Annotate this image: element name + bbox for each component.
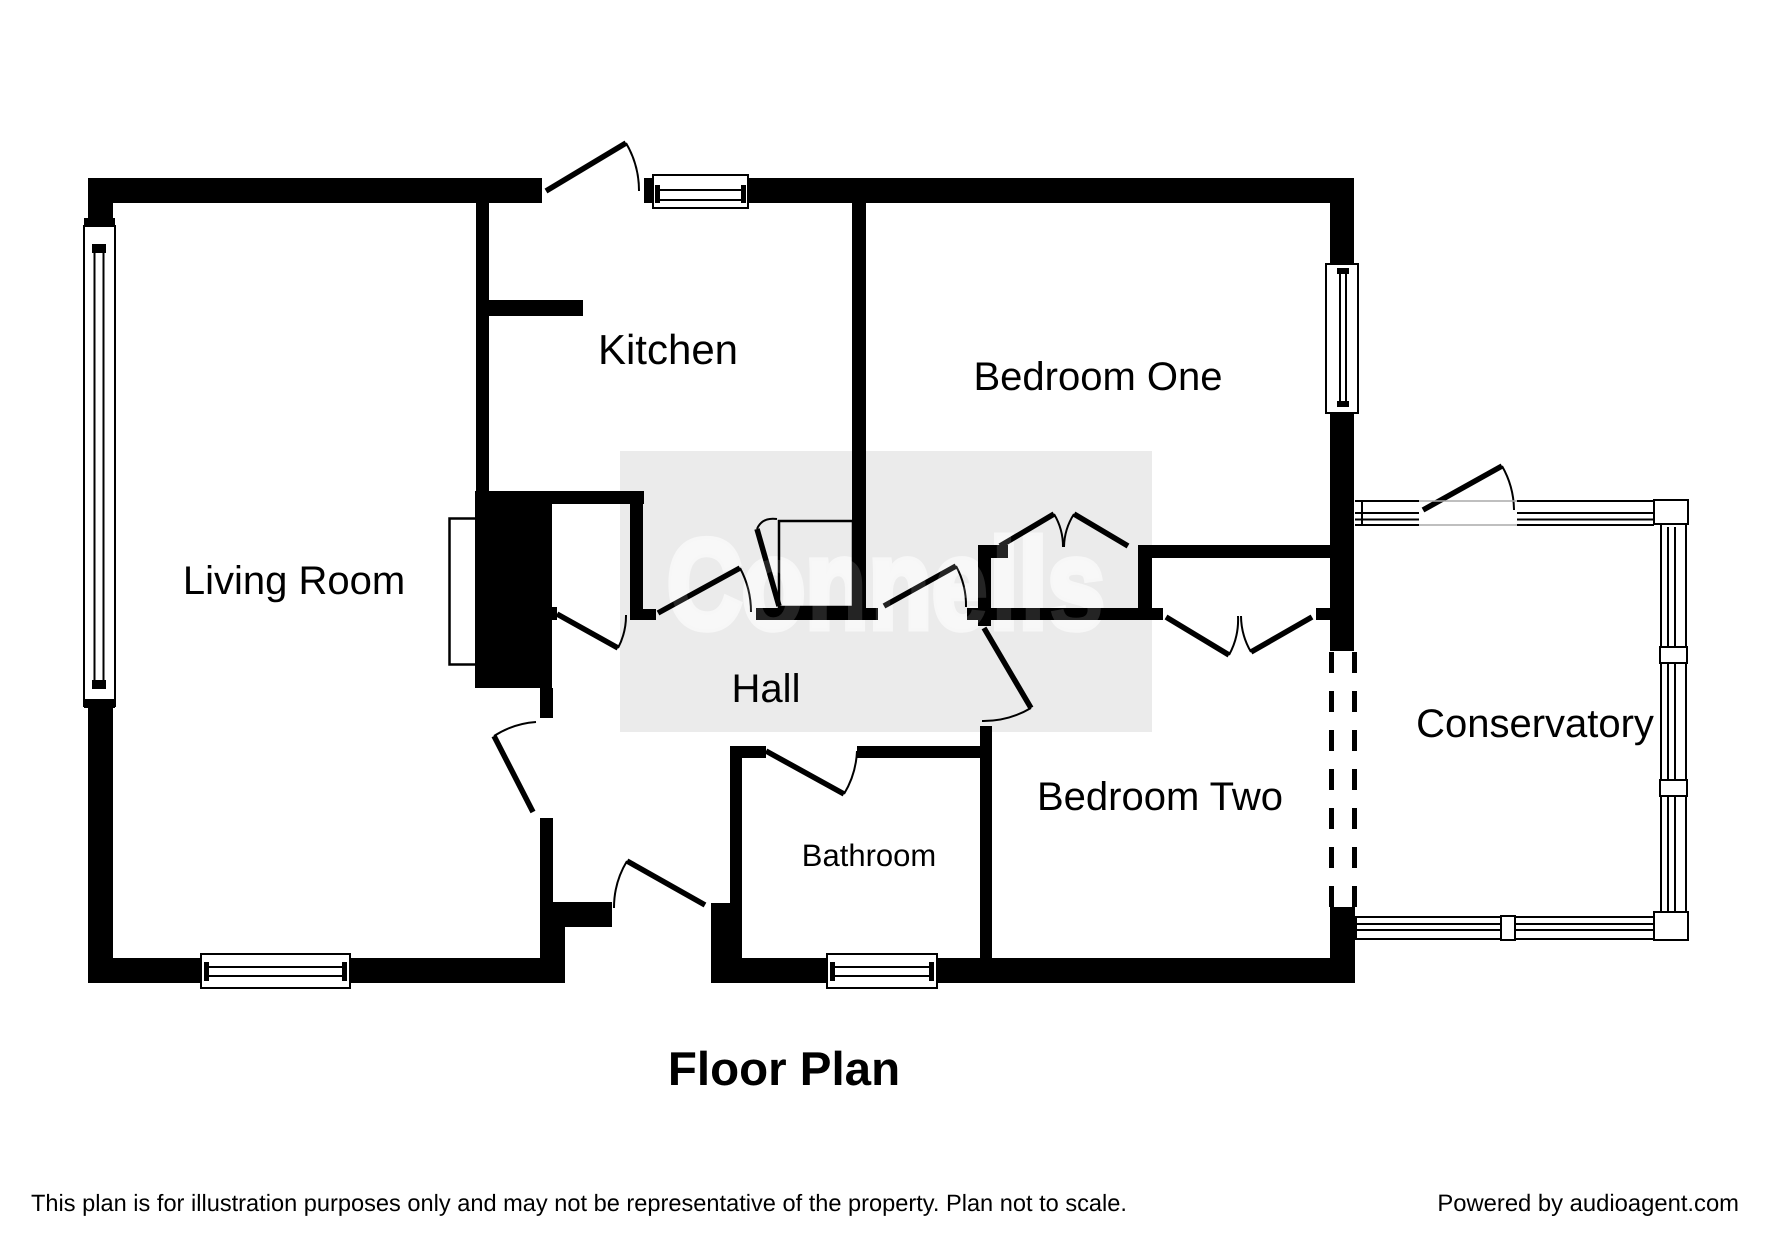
svg-text:Floor Plan: Floor Plan [668, 1043, 900, 1096]
svg-text:Powered by audioagent.com: Powered by audioagent.com [1437, 1190, 1739, 1217]
svg-text:Bedroom Two: Bedroom Two [1037, 775, 1283, 819]
svg-text:Kitchen: Kitchen [598, 326, 738, 373]
svg-text:Hall: Hall [732, 667, 801, 711]
svg-text:Conservatory: Conservatory [1416, 702, 1654, 746]
svg-text:Bathroom: Bathroom [802, 838, 936, 873]
svg-text:Bedroom One: Bedroom One [973, 355, 1222, 399]
svg-text:This plan is for illustration: This plan is for illustration purposes o… [31, 1191, 1127, 1217]
svg-text:Living Room: Living Room [183, 559, 405, 603]
svg-text:Connells: Connells [667, 513, 1105, 655]
